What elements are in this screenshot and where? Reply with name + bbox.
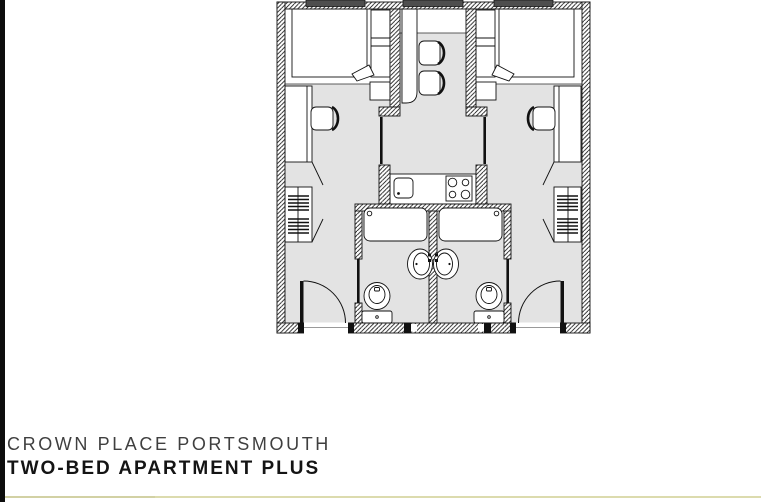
shelf-right — [476, 82, 496, 100]
wall-corridor-left — [390, 9, 400, 107]
wall-bath-right-lower — [504, 303, 511, 323]
wall-left — [277, 2, 285, 333]
desk-chair-right — [533, 107, 555, 130]
window-dining — [403, 0, 463, 7]
dining-chair-1 — [419, 41, 440, 65]
window-bedroom-right — [494, 0, 553, 7]
entry-door-left — [300, 281, 304, 323]
floor-plan-drawing — [275, 0, 593, 338]
property-name: CROWN PLACE PORTSMOUTH — [7, 433, 331, 455]
dining-chair-2 — [419, 71, 440, 95]
wall-kitchen-right — [476, 165, 487, 204]
bathroom-door-right — [506, 259, 509, 303]
four-ring-hob — [446, 176, 472, 201]
wall-bath-left-upper — [355, 211, 362, 259]
kitchen — [390, 174, 476, 204]
windows — [306, 0, 553, 7]
bedside-unit-right — [476, 10, 495, 77]
wall-bath-right-upper — [504, 211, 511, 259]
unit-type: TWO-BED APARTMENT PLUS — [7, 457, 331, 481]
dining-table — [402, 9, 417, 103]
wall-bath-left-lower — [355, 303, 362, 323]
entry-door-right — [561, 281, 565, 323]
shelf-left — [370, 82, 390, 100]
wall-corridor-right — [466, 9, 476, 107]
toilet-left — [364, 283, 390, 310]
bath-right — [439, 208, 502, 241]
bathroom-door-left — [357, 259, 360, 303]
desk-left — [285, 86, 312, 162]
kitchen-door-right — [483, 117, 486, 164]
bottom-divider-line-left-segment — [5, 496, 155, 498]
window-bedroom-left — [306, 0, 365, 7]
page: CROWN PLACE PORTSMOUTH TWO-BED APARTMENT… — [0, 0, 761, 502]
kitchen-sink — [394, 178, 413, 198]
bed-left — [292, 9, 367, 77]
bath-left — [364, 208, 427, 241]
floor-plan — [275, 0, 593, 338]
desk-right — [554, 86, 581, 162]
left-edge-bar — [0, 0, 5, 502]
wall-right — [582, 2, 590, 333]
bed-right — [499, 9, 574, 77]
wall-kitchen-left — [379, 165, 390, 204]
kitchen-door-left — [380, 117, 383, 164]
desk-chair-left — [311, 107, 333, 130]
caption: CROWN PLACE PORTSMOUTH TWO-BED APARTMENT… — [7, 433, 331, 481]
toilet-right — [476, 283, 502, 310]
bedside-unit-left — [371, 10, 390, 77]
